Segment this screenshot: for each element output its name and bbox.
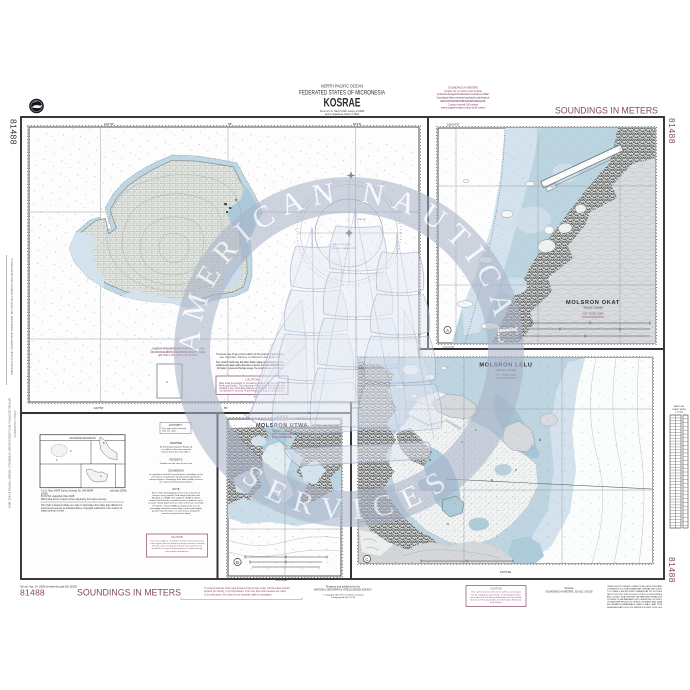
svg-text:are represented by altering fi: are represented by altering figures xyxy=(159,481,193,484)
svg-text:162°57'E: 162°57'E xyxy=(447,123,459,127)
svg-text:thoroughly examined, particula: thoroughly examined, particularly in are… xyxy=(150,507,203,510)
svg-text:INFORMATION AVAILABLE DIRECT M: INFORMATION AVAILABLE DIRECT MAIL THAT T… xyxy=(607,603,663,606)
svg-text:B US Hyd. departing Chile 21: B US Hyd. departing Chile 21/08 xyxy=(41,495,75,498)
svg-text:This system barrier will run i: This system barrier will run into within… xyxy=(471,591,522,594)
svg-text:depths and hazards is limited: depths and hazards is limited by water c… xyxy=(150,499,204,502)
svg-text:C: C xyxy=(365,557,368,562)
svg-text:Data Routes: Data Routes xyxy=(490,601,503,604)
svg-text:FOR NAVIGATION: FOR NAVIGATION xyxy=(582,316,603,319)
svg-text:with a supplementary contour a: with a supplementary contour at 50 meter… xyxy=(441,106,486,110)
svg-text:81488: 81488 xyxy=(667,557,677,583)
svg-text:© Copyright 2015 The next New: © Copyright 2015 The next New Louisiana xyxy=(322,594,364,597)
svg-text:(U.S Runways System, Region 4): (U.S Runways System, Region 4) xyxy=(160,445,193,448)
svg-text:NATIONAL GEOSPATIAL-INTELLIGEN: NATIONAL GEOSPATIAL-INTELLIGENCE AGENCY xyxy=(314,589,373,592)
svg-text:81488: 81488 xyxy=(9,119,19,145)
svg-text:SOUNDINGS IN METERS: SOUNDINGS IN METERS xyxy=(555,106,658,116)
svg-text:To assure that this chart card: To assure that this chart card printed o… xyxy=(10,258,13,376)
svg-text:(1:0) estimation, this chart (: (1:0) estimation, this chart (is not bon… xyxy=(204,593,272,596)
svg-text:GEODETIC: GEODETIC xyxy=(169,458,183,462)
svg-text:55': 55' xyxy=(224,406,228,410)
svg-text:AUTHORITY: AUTHORITY xyxy=(169,424,183,427)
svg-text:CAUTION: CAUTION xyxy=(245,378,259,382)
svg-text:In compliance with IHO specifi: In compliance with IHO specifications, s… xyxy=(149,473,204,476)
svg-text:Kosrae: Kosrae xyxy=(565,586,574,590)
svg-text:NGA NAVIGATION PLUS (METRICS): NGA NAVIGATION PLUS (METRICS) REF. 2015-… xyxy=(607,606,663,609)
svg-text:CAUTION: CAUTION xyxy=(490,587,502,591)
svg-text:SOUNDINGS IN METERS, SCALE 1:7: SOUNDINGS IN METERS, SCALE 1:75,000 xyxy=(545,591,593,594)
svg-text:Ranging, or LIDAR. This abili: Ranging, or LIDAR. This ability of LIDAR… xyxy=(152,497,201,500)
svg-text:greater than 20 meters. In su: greater than 20 meters. In such areas, d… xyxy=(152,510,200,513)
svg-text:AND CONTACT NGA'S FAX AND THE: AND CONTACT NGA'S FAX AND THE MARITIME O… xyxy=(607,595,662,598)
svg-text:SOURCE DIAGRAM: SOURCE DIAGRAM xyxy=(70,436,97,440)
svg-text:surveys using satellite Land i: surveys using satellite Land image Detec… xyxy=(152,494,200,497)
svg-text:is in effect in this area cove: is in effect in this area covered xyxy=(161,448,191,451)
svg-text:CAUTION: CAUTION xyxy=(171,535,183,539)
svg-text:in the region that the network: in the region that the network surveys p… xyxy=(150,542,205,545)
svg-text:This chart is based in whole o: This chart is based in whole or in part … xyxy=(41,504,123,507)
svg-text:A: A xyxy=(446,328,449,333)
svg-text:Lithographed by N.I.C.A: Lithographed by N.I.C.A xyxy=(331,596,355,599)
svg-text:as water clarity, depth and se: as water clarity, depth and sea state at… xyxy=(148,502,204,505)
svg-text:SCALE 1:10,000: SCALE 1:10,000 xyxy=(583,306,603,310)
svg-text:vessels may find lesser depth: vessels may find lesser depth xyxy=(162,512,191,515)
svg-text:Much of the hydrography on thi: Much of the hydrography on this chart is… xyxy=(152,491,201,494)
svg-text:prescribed the Full listing of: prescribed the Full listing of Republic-… xyxy=(470,596,522,599)
svg-text:Government sources as indicate: Government sources as indicated above. C… xyxy=(41,507,122,510)
svg-text:FAX 571-557-3162 DSN 547-5455: FAX 571-557-3162 DSN 547-5455 TO PRODUCT… xyxy=(607,593,662,596)
svg-text:TOLL FREE 1-800-362-6289 COMM: TOLL FREE 1-800-362-6289 COMMERCIAL 571-… xyxy=(607,590,663,593)
svg-text:Therefore, certain LIDAR-surve: Therefore, certain LIDAR-surveyed areas … xyxy=(152,504,200,507)
svg-text:KOSRAE: KOSRAE xyxy=(324,96,361,110)
svg-text:LORAN-C OVERPRINTED: LORAN-C OVERPRINTED xyxy=(13,410,16,438)
svg-text:by this chart. See Chart No. 1: by this chart. See Chart No. 1 xyxy=(162,451,191,454)
svg-text:and back (2008): and back (2008) xyxy=(110,491,127,493)
svg-text:Results more coordinate with t: Results more coordinate with the own sys… xyxy=(152,545,202,548)
svg-text:NOTE: NOTE xyxy=(172,487,179,491)
svg-text:NATIONAL GEOSPATIAL-INTELLIGEN: NATIONAL GEOSPATIAL-INTELLIGENCE AGENCY,… xyxy=(8,398,11,509)
svg-text:1:75,000: 1:75,000 xyxy=(675,412,684,414)
svg-text:B: B xyxy=(236,560,239,565)
svg-text:time that are shaded are repro: time that are shaded are reproduced by a… xyxy=(151,475,201,478)
svg-text:356° 45': 356° 45' xyxy=(358,219,367,221)
svg-text:should also accept a departing: should also accept a departing lines to … xyxy=(151,547,203,550)
svg-text:The exact depth in sounded in: The exact depth in sounded in (some) of … xyxy=(150,539,204,542)
svg-text:will for navigation, positione: will for navigation, positioned, on floa… xyxy=(471,593,522,596)
svg-text:Grid: ties clarks: Grid: ties clarks xyxy=(162,430,176,433)
svg-text:NAUTICAL: NAUTICAL xyxy=(674,405,685,408)
svg-text:SOUNDINGS: SOUNDINGS xyxy=(168,469,184,473)
svg-text:CHART MILES: CHART MILES xyxy=(672,408,687,411)
svg-text:Micronesia and in respect to t: Micronesia and in respect to their plani… xyxy=(41,498,107,501)
svg-text:selected figures. Soundings f: selected figures. Soundings from older r… xyxy=(149,478,203,481)
svg-text:origin continue to exist: origin continue to exist xyxy=(41,510,64,513)
svg-text:163°E: 163°E xyxy=(353,122,361,126)
svg-text:A U.S. Navy USAF Survey, Sur: A U.S. Navy USAF Survey, Surveys No. 340… xyxy=(41,490,93,493)
svg-text:OF MARITIME PRODUCTS OFFICE OF: OF MARITIME PRODUCTS OFFICE OF AGENT AND… xyxy=(607,601,663,604)
svg-text:MOLSRON OKAT: MOLSRON OKAT xyxy=(566,300,620,306)
svg-text:162°52': 162°52' xyxy=(104,122,115,126)
svg-text:and a Japanese chart of 1924: and a Japanese chart of 1924 xyxy=(325,112,359,116)
svg-text:163°01'E: 163°01'E xyxy=(276,578,287,582)
svg-text:(2008): (2008) xyxy=(41,493,48,495)
svg-text:162°57'E: 162°57'E xyxy=(443,346,454,350)
svg-text:USERS SHOULD REFER CORRECTIONS: USERS SHOULD REFER CORRECTIONS, ADDITION… xyxy=(607,585,662,588)
svg-text:COMMENTS TO NGA'S MARITIME OPE: COMMENTS TO NGA'S MARITIME OPERATIONS DE… xyxy=(607,588,663,591)
svg-text:COURSE OF BE AVAILABLE INTO AG: COURSE OF BE AVAILABLE INTO AGENCIES OF … xyxy=(607,598,663,601)
svg-text:163°01'E: 163°01'E xyxy=(500,570,511,574)
svg-text:Datritios are the seas to this: Datritios are the seas to this chart xyxy=(160,462,193,465)
svg-text:SOUNDINGS IN METERS: SOUNDINGS IN METERS xyxy=(77,588,181,598)
svg-text:81488: 81488 xyxy=(20,588,45,598)
svg-text:Directions Planning Guides for: Directions Planning Guides for informati… xyxy=(470,599,523,602)
svg-text:55': 55' xyxy=(228,122,232,126)
svg-text:162°50': 162°50' xyxy=(94,406,104,410)
svg-text:WARTIME: WARTIME xyxy=(170,441,182,445)
svg-text:81488: 81488 xyxy=(667,118,677,144)
svg-text:with growth smoothness: with growth smoothness xyxy=(165,550,189,553)
